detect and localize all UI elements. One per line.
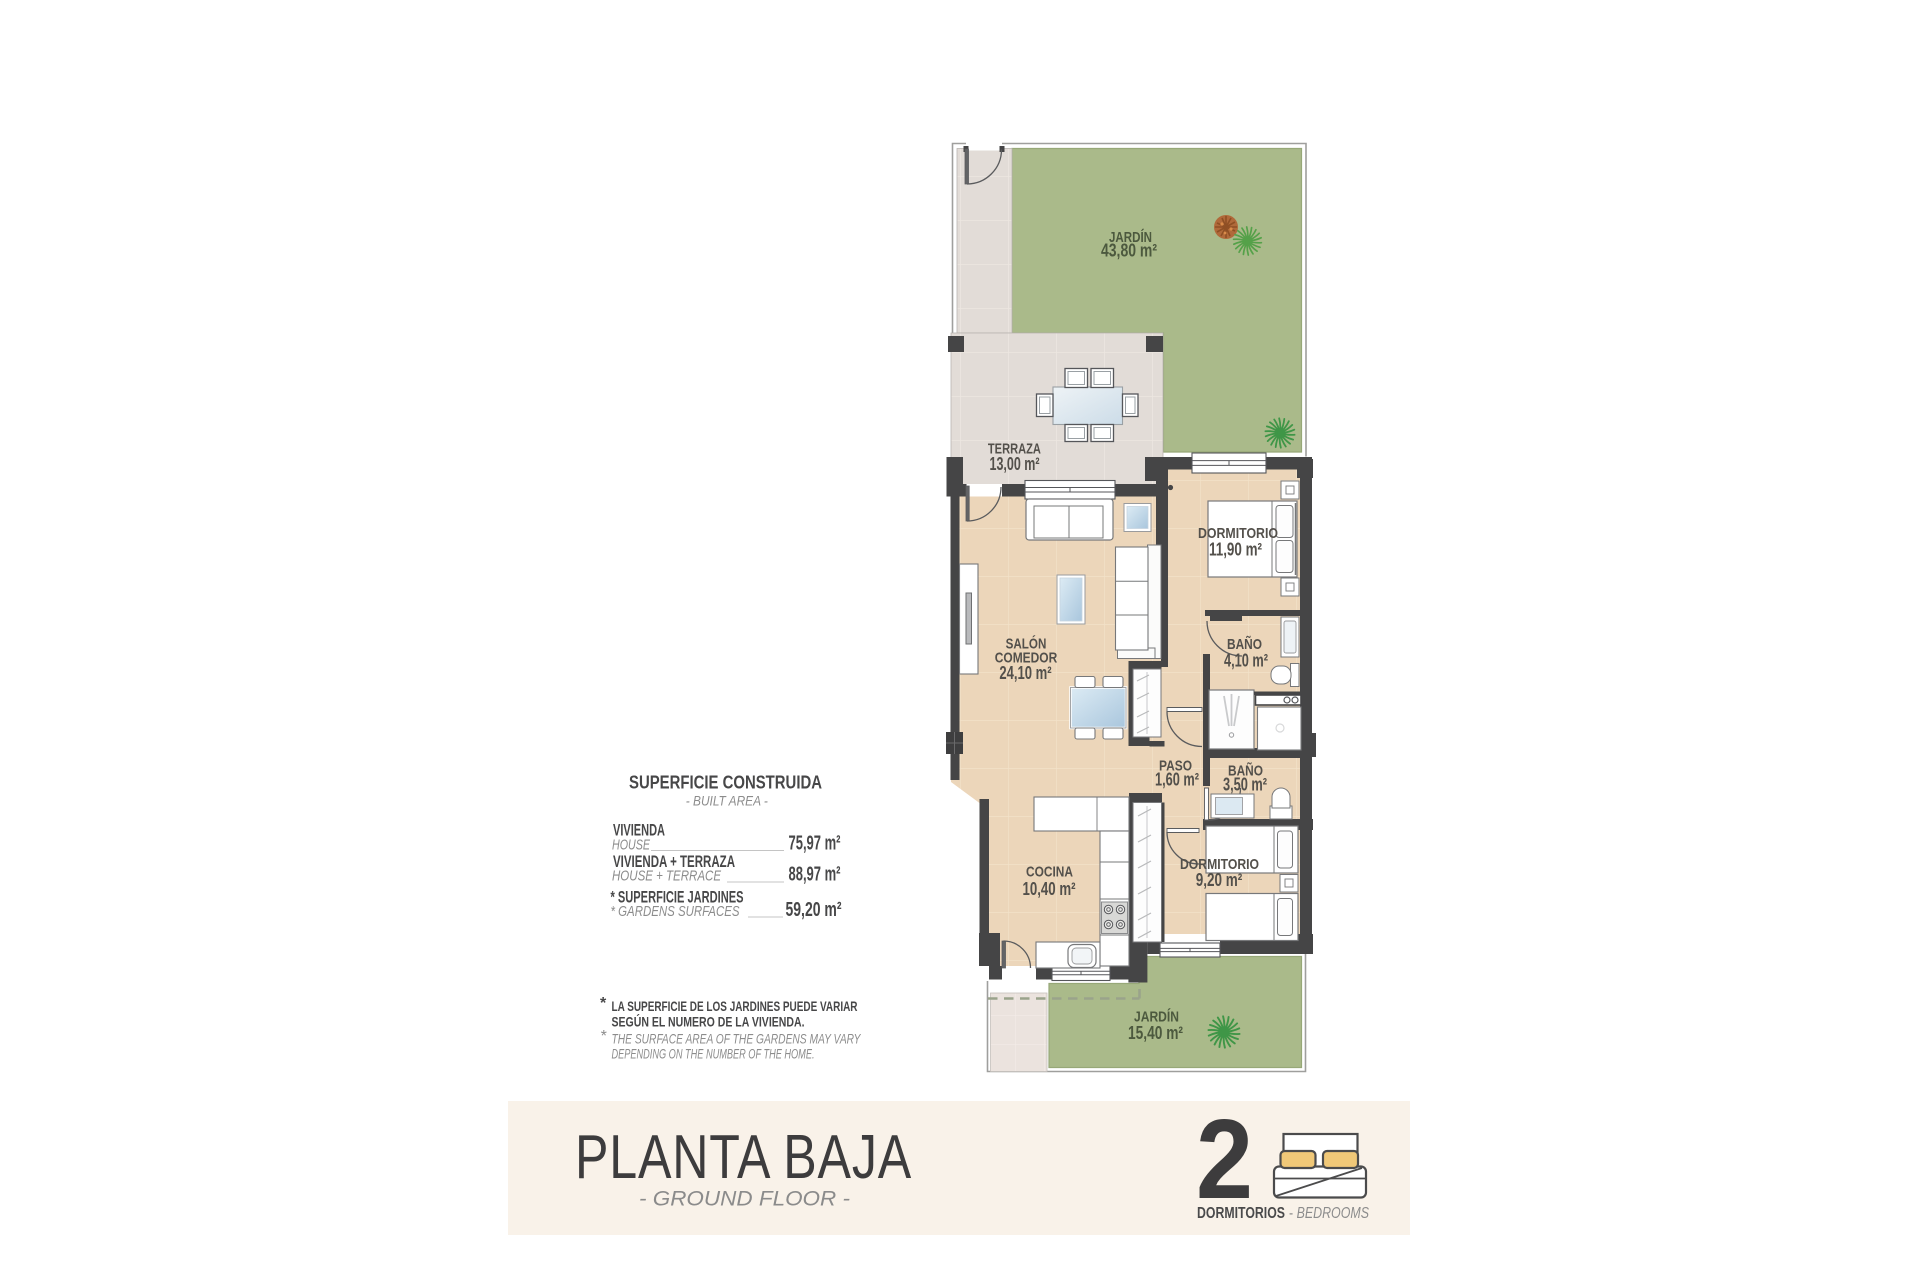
svg-text:LA SUPERFICIE DE LOS JARDINES: LA SUPERFICIE DE LOS JARDINES PUEDE VARI… bbox=[612, 998, 858, 1014]
svg-text:DEPENDING ON THE NUMBER OF THE: DEPENDING ON THE NUMBER OF THE HOME. bbox=[612, 1046, 815, 1062]
svg-text:43,80 m²: 43,80 m² bbox=[1101, 241, 1157, 261]
svg-text:59,20 m²: 59,20 m² bbox=[786, 899, 842, 921]
svg-text:DORMITORIOS: DORMITORIOS bbox=[1197, 1205, 1285, 1222]
svg-text:24,10 m²: 24,10 m² bbox=[999, 663, 1051, 683]
svg-text:10,40 m²: 10,40 m² bbox=[1023, 879, 1076, 899]
svg-text:- GROUND FLOOR -: - GROUND FLOOR - bbox=[639, 1188, 850, 1211]
svg-text:1,60 m²: 1,60 m² bbox=[1155, 770, 1199, 790]
svg-text:- BUILT AREA -: - BUILT AREA - bbox=[686, 794, 768, 809]
svg-text:3,50 m²: 3,50 m² bbox=[1223, 775, 1267, 795]
svg-text:- BEDROOMS: - BEDROOMS bbox=[1289, 1205, 1370, 1222]
svg-text:9,20 m²: 9,20 m² bbox=[1196, 870, 1243, 890]
svg-text:HOUSE + TERRACE: HOUSE + TERRACE bbox=[612, 868, 722, 885]
svg-text:88,97 m²: 88,97 m² bbox=[789, 864, 841, 886]
svg-text:SEGÚN EL NUMERO DE LA VIVIENDA: SEGÚN EL NUMERO DE LA VIVIENDA. bbox=[612, 1013, 805, 1030]
svg-text:*: * bbox=[600, 1028, 607, 1045]
svg-text:THE SURFACE AREA OF THE GARDEN: THE SURFACE AREA OF THE GARDENS MAY VARY bbox=[612, 1031, 862, 1047]
svg-text:13,00 m²: 13,00 m² bbox=[990, 454, 1040, 474]
svg-text:15,40 m²: 15,40 m² bbox=[1128, 1023, 1183, 1043]
svg-text:PLANTA BAJA: PLANTA BAJA bbox=[575, 1123, 912, 1192]
svg-text:COCINA: COCINA bbox=[1026, 863, 1073, 880]
svg-text:2: 2 bbox=[1196, 1096, 1253, 1222]
svg-text:SUPERFICIE CONSTRUIDA: SUPERFICIE CONSTRUIDA bbox=[629, 773, 822, 793]
svg-text:11,90 m²: 11,90 m² bbox=[1209, 540, 1262, 560]
svg-text:*: * bbox=[600, 995, 607, 1012]
svg-text:4,10 m²: 4,10 m² bbox=[1224, 651, 1268, 671]
svg-text:HOUSE: HOUSE bbox=[612, 836, 651, 853]
svg-text:75,97 m²: 75,97 m² bbox=[789, 832, 841, 854]
svg-text:* GARDENS SURFACES: * GARDENS SURFACES bbox=[611, 903, 740, 920]
